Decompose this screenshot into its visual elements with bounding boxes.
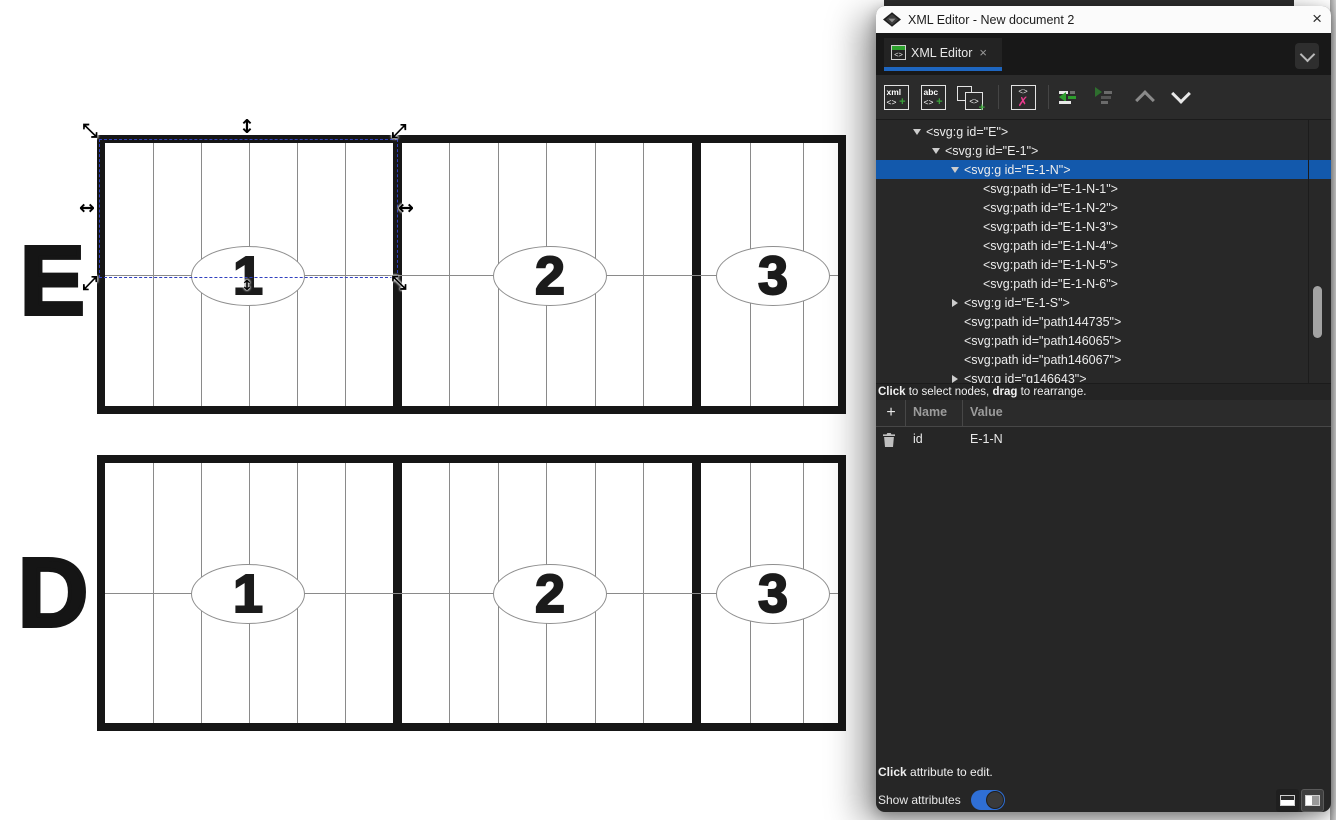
section-number-badge[interactable]: 2 [493,564,607,624]
indent-node-icon [1095,91,1119,104]
new-text-node-button[interactable]: abc <>+ [919,82,947,112]
layout-horizontal-button[interactable] [1276,789,1299,812]
tree-row[interactable]: <svg:g id="E-1"> [876,141,1331,160]
unindent-node-button[interactable] [1057,82,1085,112]
unindent-node-icon [1059,91,1083,104]
xml-node-tree[interactable]: <svg:g id="E"> <svg:g id="E-1"> <svg:g i… [876,119,1331,384]
chevron-up-icon [1135,90,1155,110]
expander-open-icon[interactable] [929,141,943,160]
attribute-value[interactable]: E-1-N [970,432,1003,446]
tree-row[interactable]: <svg:path id="E-1-N-3"> [876,217,1331,236]
tree-row[interactable]: <svg:path id="path146067"> [876,350,1331,369]
delete-node-icon: <> ✗ [1011,85,1036,110]
indent-node-button[interactable] [1093,82,1121,112]
dialog-bottom-bar: Show attributes [878,787,1324,812]
panel-menu-button[interactable] [1295,43,1319,69]
tree-row[interactable]: <svg:path id="E-1-N-4"> [876,236,1331,255]
tree-row[interactable]: <svg:path id="E-1-N-6"> [876,274,1331,293]
move-node-down-button[interactable] [1167,82,1195,112]
scale-handle-top-right-icon[interactable]: ⤢ [388,120,410,142]
layout-vertical-icon [1305,795,1320,806]
xml-editor-tab-icon: <> [891,45,906,60]
expander-open-icon[interactable] [948,160,962,179]
scale-handle-bottom-left-icon[interactable]: ⤢ [79,272,101,294]
tree-row[interactable]: <svg:path id="E-1-N-2"> [876,198,1331,217]
inkscape-screen: E D 1 2 3 [0,0,1336,820]
active-tab-indicator [884,67,1002,71]
drawing-row-d[interactable]: 1 2 3 [97,455,846,731]
duplicate-node-button[interactable]: <> + [956,82,984,112]
show-attributes-label: Show attributes [878,793,961,807]
layout-vertical-button[interactable] [1301,789,1324,812]
attribute-row[interactable]: id E-1-N [876,427,1331,453]
duplicate-node-icon: <> + [957,84,983,110]
attr-name-header: Name [913,405,947,419]
new-text-node-icon: abc <>+ [921,85,946,110]
scale-handle-bottom-right-icon[interactable]: ⤡ [388,272,410,294]
tree-hint: Click to select nodes, drag to rearrange… [876,384,1331,400]
attribute-hint: Click attribute to edit. [878,765,993,779]
section-number-badge[interactable]: 1 [191,564,305,624]
tree-row[interactable]: <svg:path id="E-1-N-1"> [876,179,1331,198]
selection-box [99,139,398,278]
tree-scrollbar-thumb[interactable] [1313,286,1322,338]
tree-row[interactable]: <svg:g id="E"> [876,122,1331,141]
dialog-tabbar: <> XML Editor × [876,33,1331,75]
tree-row[interactable]: <svg:path id="path144735"> [876,312,1331,331]
dialog-title: XML Editor - New document 2 [908,13,1074,27]
attributes-header: + Name Value [876,400,1331,427]
new-element-node-button[interactable]: xml <>+ [882,82,910,112]
section-number-badge[interactable]: 2 [493,246,607,306]
toolbar-separator [1048,85,1049,109]
toolbar-separator [998,85,999,109]
tab-label: XML Editor [911,46,972,60]
tree-row-selected[interactable]: <svg:g id="E-1-N"> [876,160,1331,179]
expander-closed-icon[interactable] [948,369,962,384]
inkscape-logo-icon [883,12,901,27]
scale-handle-middle-right-icon[interactable]: ↔ [395,197,417,219]
new-element-node-icon: xml <>+ [884,85,909,110]
tree-row[interactable]: <svg:path id="E-1-N-5"> [876,255,1331,274]
scrollbar-track-divider [1308,120,1309,383]
show-attributes-toggle[interactable] [971,790,1005,810]
scale-handle-bottom-center-icon[interactable]: ↕ [236,275,258,297]
tab-close-icon[interactable]: × [979,45,987,60]
delete-attribute-icon[interactable] [883,433,895,447]
scale-handle-top-left-icon[interactable]: ⤡ [79,120,101,142]
section-number-badge[interactable]: 3 [716,564,830,624]
add-attribute-button[interactable]: + [880,402,902,423]
scale-handle-middle-left-icon[interactable]: ↔ [76,197,98,219]
tree-row[interactable]: <svg:path id="path146065"> [876,331,1331,350]
expander-open-icon[interactable] [910,122,924,141]
attr-value-header: Value [970,405,1003,419]
tree-row[interactable]: <svg:g id="E-1-S"> [876,293,1331,312]
section-number-badge[interactable]: 3 [716,246,830,306]
tab-xml-editor[interactable]: <> XML Editor × [884,38,1002,67]
xml-editor-dialog: XML Editor - New document 2 × <> XML Edi… [876,6,1331,812]
row-letter-d[interactable]: D [18,544,88,641]
xml-toolbar: xml <>+ abc <>+ <> + <> [876,75,1331,119]
tree-row[interactable]: <svg:g id="g146643"> [876,369,1331,384]
chevron-down-icon [1171,84,1191,104]
layout-horizontal-icon [1280,795,1295,806]
move-node-up-button[interactable] [1131,82,1159,112]
close-icon[interactable]: × [1312,6,1322,33]
row-letter-e[interactable]: E [20,232,85,329]
panel-layout-buttons [1276,789,1324,812]
chevron-down-icon [1299,46,1315,62]
attribute-name[interactable]: id [913,432,923,446]
expander-closed-icon[interactable] [948,293,962,312]
dialog-titlebar[interactable]: XML Editor - New document 2 × [876,6,1331,33]
scale-handle-top-center-icon[interactable]: ↕ [236,116,258,138]
delete-node-button[interactable]: <> ✗ [1009,82,1037,112]
